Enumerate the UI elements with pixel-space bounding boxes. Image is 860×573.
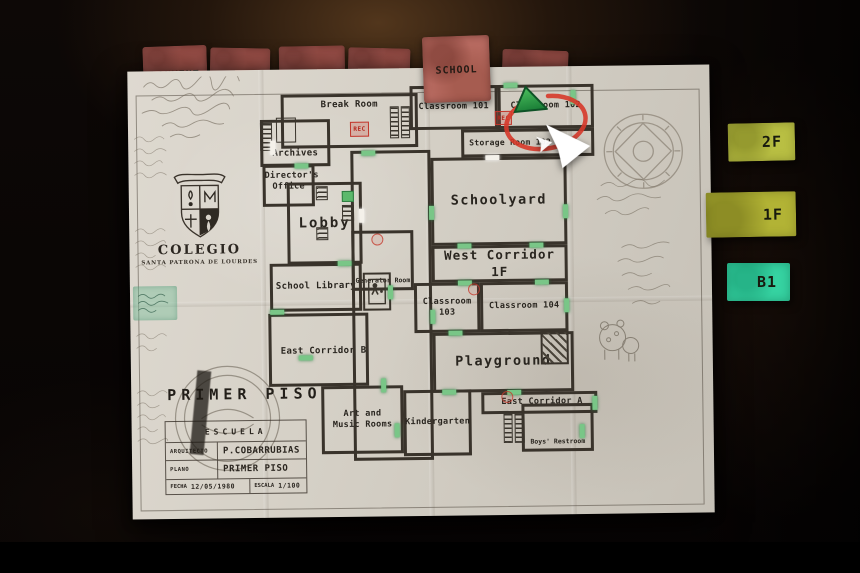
room-label: Classroom 101: [418, 102, 489, 114]
date-cell: FECHA 12/05/1980: [166, 479, 250, 494]
room-label: Classroom 103: [417, 296, 477, 319]
door-marker: [338, 261, 352, 266]
plan-heading: PRIMER PISO: [167, 384, 322, 404]
room-label: Schoolyard: [451, 192, 547, 211]
scale-cell: ESCALA 1/100: [250, 478, 306, 493]
lockers-icon: [503, 413, 512, 443]
floor-label: B1: [757, 273, 777, 291]
room-label: Break Room: [321, 100, 378, 112]
room-label: Archives: [272, 149, 318, 161]
door-marker: [429, 206, 434, 220]
date-value: 12/05/1980: [191, 482, 235, 491]
corridor-west-1f: West Corridor 1F: [431, 244, 567, 283]
door-marker: [361, 151, 375, 156]
school-row: ESCUELA: [166, 420, 306, 442]
scale-label: ESCALA: [254, 483, 274, 489]
exit-marker: [342, 191, 354, 202]
door-marker: [395, 423, 400, 437]
door-marker: [529, 243, 543, 248]
room-label: School Library: [276, 281, 356, 294]
door-marker: [592, 396, 597, 410]
stairs-icon: [390, 106, 399, 138]
door-marker: [430, 310, 435, 324]
objective-marker: [501, 391, 513, 403]
room-label: Classroom 104: [489, 301, 560, 313]
door-marker: [442, 390, 456, 395]
tab-label: SCHOOL: [435, 64, 477, 76]
stairs-icon: [342, 205, 354, 221]
letterbox-bottom: [0, 542, 860, 573]
date-label: FECHA: [170, 484, 187, 490]
door-marker: [299, 355, 313, 360]
plan-value: PRIMER PISO: [218, 459, 306, 478]
stairs-icon: [401, 106, 410, 138]
door-marker: [388, 285, 393, 299]
room-wc: [363, 272, 391, 310]
floor-tab-b1[interactable]: B1: [727, 263, 790, 301]
plan-label: PLANO: [166, 460, 218, 479]
door-marker: [535, 279, 549, 284]
door-marker: [448, 330, 462, 335]
player-position-marker: [509, 84, 547, 116]
elevator-icon: [276, 118, 296, 143]
door-marker-white: [270, 141, 275, 155]
floor-label: 2F: [762, 133, 782, 151]
door-marker: [580, 424, 585, 438]
stairs-icon: [316, 186, 328, 200]
room-school-library: School Library: [270, 263, 363, 312]
save-label: REC: [353, 126, 365, 133]
floor-label: 1F: [763, 205, 783, 223]
room-label: Boys' Restroom: [530, 437, 585, 446]
room-label: West Corridor 1F: [434, 246, 564, 280]
objective-marker: [371, 233, 383, 245]
door-marker: [457, 243, 471, 248]
scale-value: 1/100: [278, 481, 300, 489]
tab-school[interactable]: SCHOOL: [422, 35, 491, 103]
floor-tab-1f[interactable]: 1F: [706, 191, 797, 238]
lockers-icon: [514, 413, 524, 443]
game-screen: CONVENT TOWN PROCESSING MALL SCHOOL CEME…: [0, 0, 860, 573]
door-marker-white: [485, 155, 499, 160]
door-marker: [381, 378, 386, 392]
door-marker-white: [359, 209, 364, 223]
door-marker: [270, 310, 284, 315]
objective-marker: [468, 283, 480, 295]
cursor-arrow: [536, 122, 595, 173]
architect-value: P.COBARRUBIAS: [218, 441, 306, 459]
hatched-area: [540, 330, 568, 364]
door-marker: [564, 298, 569, 312]
emblem-title: COLEGIO: [149, 242, 249, 258]
room-label: Playground: [455, 353, 551, 372]
door-marker: [563, 204, 568, 218]
room-classroom-104: Classroom 104: [480, 281, 569, 332]
sticky-note: [133, 286, 177, 321]
map-paper: COLEGIO SANTA PATRONA DE LOURDES PRIMER …: [127, 64, 714, 519]
save-point-icon: REC: [350, 122, 369, 137]
door-marker: [294, 163, 308, 168]
title-block-table: ESCUELA ARQUITECTO P.COBARRUBIAS PLANO P…: [165, 419, 308, 495]
stairs-icon: [316, 227, 328, 240]
floor-tab-2f[interactable]: 2F: [728, 122, 796, 161]
